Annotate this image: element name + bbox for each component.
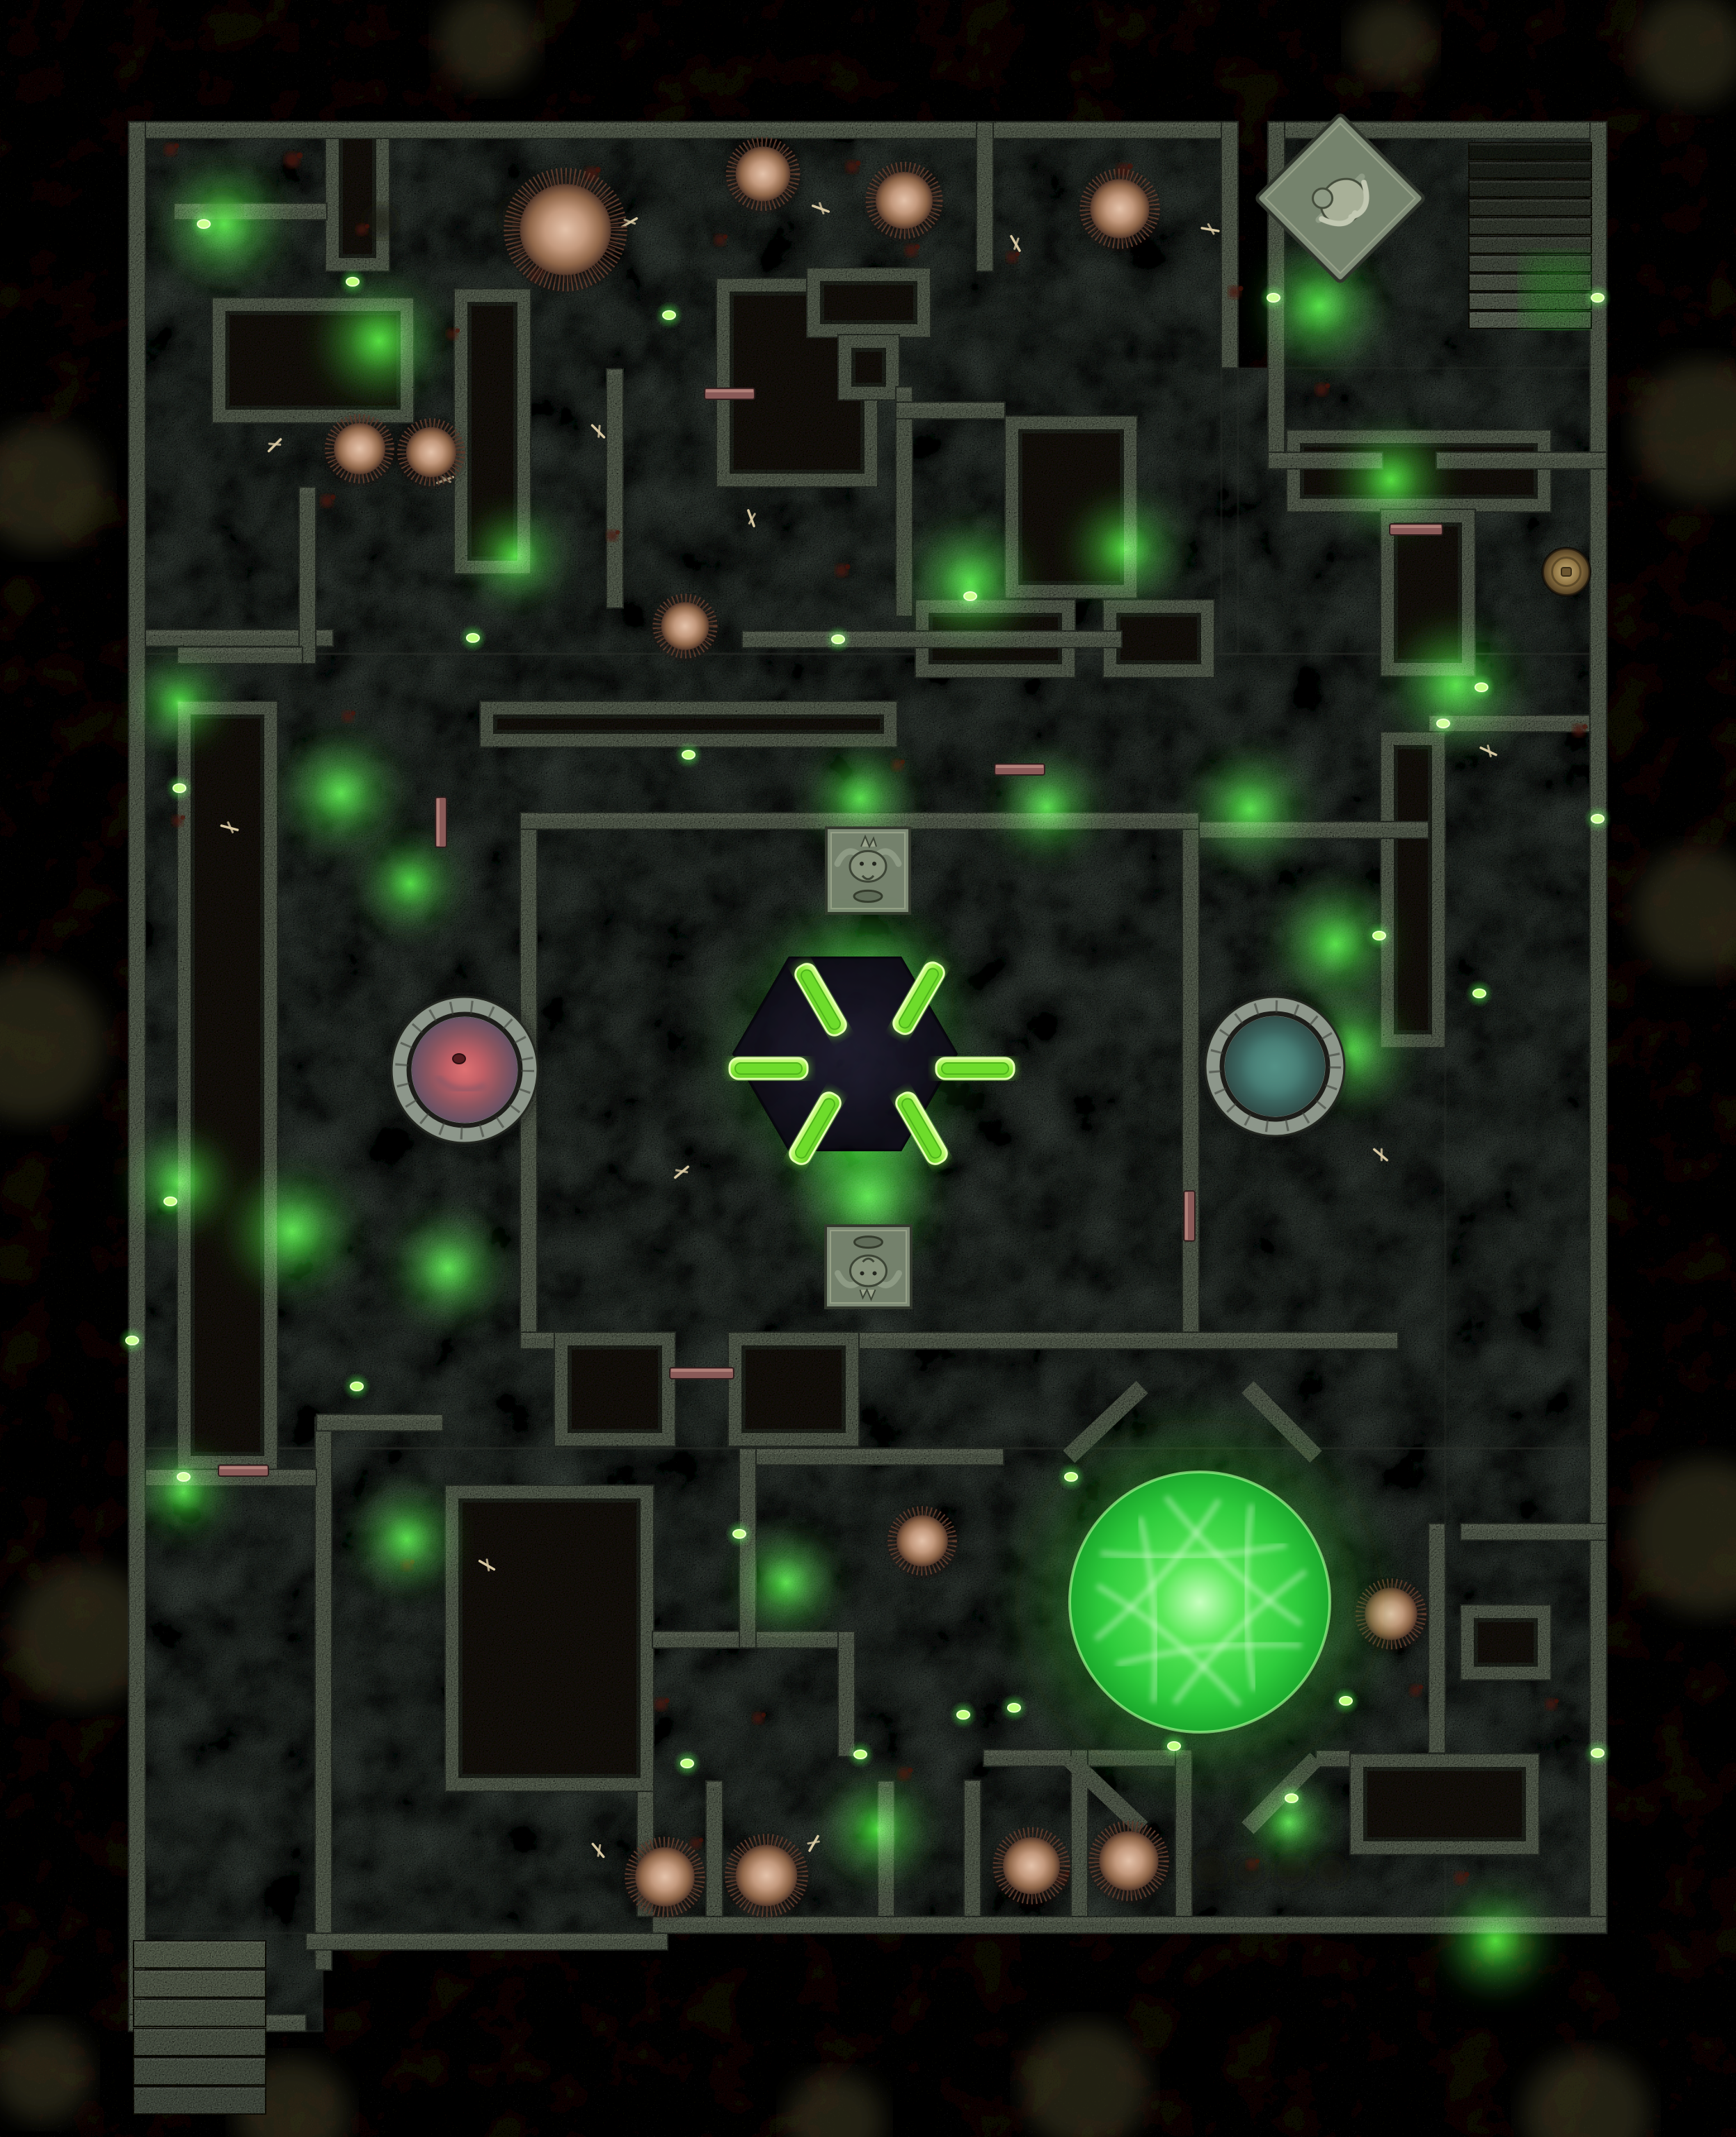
wall-highlight — [1269, 123, 1605, 127]
statue-eye — [872, 862, 876, 866]
wall-highlight — [608, 370, 622, 374]
wall-highlight — [1430, 1525, 1444, 1529]
door-marker[interactable] — [218, 1465, 268, 1476]
wall-highlight — [897, 403, 1004, 408]
wall-light[interactable] — [177, 1473, 190, 1481]
green-orb[interactable] — [998, 1400, 1401, 1804]
wall-highlight — [741, 1450, 755, 1454]
wall-light[interactable] — [663, 311, 675, 319]
wall-highlight — [130, 123, 1237, 127]
wall-light[interactable] — [1340, 1697, 1352, 1705]
stair-step — [134, 1970, 266, 1997]
pit-hole — [822, 283, 915, 322]
blood-splatter-dot — [1325, 383, 1330, 388]
puffball-mushroom[interactable] — [1092, 1827, 1166, 1900]
wall — [129, 122, 145, 2031]
door-highlight — [220, 1466, 267, 1469]
blood-splatter-dot — [699, 1838, 703, 1842]
pit-hole — [1476, 1620, 1536, 1665]
door-marker[interactable] — [705, 388, 755, 399]
mushroom-cap — [520, 184, 611, 275]
door-marker[interactable] — [670, 1368, 734, 1379]
stair-step — [134, 2028, 266, 2056]
wall-highlight — [965, 1782, 979, 1786]
wall-light[interactable] — [682, 751, 695, 759]
wall-light[interactable] — [198, 220, 210, 228]
stair-step-edge — [1469, 237, 1591, 239]
green-glow-core — [853, 1804, 903, 1855]
stair-step-edge — [1469, 161, 1591, 164]
stair-step-edge — [1469, 218, 1591, 221]
bronze-disc[interactable] — [1541, 547, 1591, 597]
green-glow-core — [492, 533, 539, 580]
stair-step — [134, 2058, 266, 2085]
wall-light[interactable] — [173, 784, 186, 792]
blood-splatter-dot — [855, 161, 860, 166]
green-glow-core — [1222, 781, 1278, 838]
wall — [1590, 122, 1607, 1933]
statue-head — [850, 851, 886, 881]
stair-step — [134, 1999, 266, 2026]
blood-splatter-dot — [1127, 163, 1133, 169]
portal-bar — [936, 1058, 1014, 1079]
statue-eye — [860, 1271, 865, 1275]
wall-light[interactable] — [1475, 683, 1488, 691]
portal-bar — [730, 1058, 807, 1079]
wall-light[interactable] — [1373, 931, 1385, 940]
blood-splatter-dot — [845, 564, 850, 569]
puffball-mushroom[interactable] — [729, 143, 797, 211]
door-highlight — [996, 765, 1043, 768]
wall-highlight — [707, 1782, 721, 1786]
demon-statue-top[interactable] — [826, 828, 910, 913]
green-glow-core — [1289, 276, 1349, 336]
wall-light[interactable] — [964, 592, 976, 600]
blood-splatter-dot — [1554, 1699, 1559, 1703]
scorch-crater — [364, 205, 397, 238]
scorch-crater — [1192, 1852, 1228, 1888]
wall-highlight — [1269, 123, 1283, 127]
blood-splatter-dot — [616, 530, 620, 534]
statue-bowl — [854, 890, 882, 902]
wall-highlight — [741, 1450, 1002, 1454]
pool-orifice — [453, 1054, 465, 1064]
stair-step — [134, 2087, 266, 2114]
blood-splatter-dot — [1419, 1685, 1423, 1689]
blood-splatter-dot — [915, 244, 919, 249]
pool-liquid — [412, 1017, 517, 1123]
mushroom-cap — [1099, 1831, 1158, 1890]
statue-eye — [873, 1271, 877, 1275]
door-marker[interactable] — [995, 764, 1045, 775]
green-glow-core — [158, 681, 202, 725]
green-glow-core — [1099, 523, 1152, 577]
wall-highlight — [1591, 123, 1605, 127]
demon-statue-bottom[interactable] — [826, 1226, 911, 1308]
stair-step-edge — [1469, 180, 1591, 183]
blood-splatter-dot — [908, 1768, 913, 1772]
stair-step-edge — [134, 2058, 266, 2060]
green-glow-core — [313, 765, 369, 822]
wall-highlight — [179, 648, 301, 653]
stair-step-edge — [1469, 199, 1591, 202]
wall-highlight — [860, 1334, 1397, 1338]
puffball-mushroom[interactable] — [655, 599, 715, 659]
red-pool[interactable] — [387, 993, 542, 1147]
wall-highlight — [839, 1633, 853, 1637]
statue-eye — [860, 862, 864, 866]
blood-splatter-dot — [1582, 724, 1587, 729]
wall-light[interactable] — [126, 1336, 138, 1345]
blood-splatter-dot — [456, 328, 460, 333]
puffball-mushroom[interactable] — [400, 424, 463, 486]
moss-patch — [1349, 0, 1433, 83]
pit-hole — [1365, 1769, 1524, 1839]
wall-highlight — [897, 388, 911, 392]
blood-splatter-dot — [1464, 1872, 1469, 1877]
wall-highlight — [307, 1935, 666, 1939]
pit-hole — [1118, 615, 1199, 662]
wall-light[interactable] — [1285, 1794, 1298, 1802]
wall-highlight — [1462, 1525, 1605, 1529]
mushroom-cap — [1090, 179, 1149, 238]
stairs-top-right[interactable] — [1469, 143, 1591, 330]
wall-light[interactable] — [832, 635, 844, 643]
blood-splatter-dot — [723, 234, 728, 239]
wall-highlight — [130, 123, 144, 127]
wall-light[interactable] — [733, 1530, 746, 1538]
green-glow-core — [421, 1242, 475, 1295]
green-glow-core — [1365, 454, 1418, 507]
blood-splatter-dot — [762, 1713, 766, 1717]
stair-glow — [1524, 255, 1591, 330]
wall-light[interactable] — [1065, 1473, 1077, 1481]
wall-light[interactable] — [1591, 1749, 1604, 1757]
wall — [706, 1781, 723, 1916]
green-glow-core — [261, 1200, 323, 1263]
stair-step-edge — [134, 1941, 266, 1944]
teal-pool[interactable] — [1201, 993, 1349, 1140]
mushroom-cap — [897, 1515, 948, 1567]
door-highlight — [437, 799, 440, 846]
disc-clasp — [1561, 568, 1571, 576]
wall — [1182, 813, 1199, 1349]
wall — [838, 1631, 855, 1756]
blood-splatter-dot — [595, 167, 601, 173]
door-marker[interactable] — [1184, 1191, 1195, 1241]
wall-highlight — [1438, 454, 1605, 458]
statue-bowl — [855, 1237, 883, 1248]
wall-light[interactable] — [164, 1197, 177, 1206]
stair-step — [134, 1941, 266, 1968]
mushroom-cap — [635, 1847, 694, 1906]
door-marker[interactable] — [1390, 524, 1442, 535]
green-glow-core — [1305, 914, 1365, 974]
wall-light[interactable] — [957, 1711, 970, 1719]
pit-hole — [495, 717, 882, 732]
wall-light[interactable] — [346, 278, 359, 286]
wall-highlight — [300, 488, 314, 493]
blood-splatter-dot — [1015, 252, 1020, 256]
pit-hole — [460, 1500, 638, 1776]
wall-light[interactable] — [467, 634, 479, 642]
stair-step-edge — [134, 2087, 266, 2090]
portal-bar-core — [735, 1063, 802, 1074]
wall-light[interactable] — [1168, 1742, 1180, 1750]
green-glow-core — [1469, 1914, 1522, 1968]
wall-light[interactable] — [1473, 989, 1486, 998]
wall-light[interactable] — [1591, 815, 1604, 823]
wall-highlight — [978, 123, 992, 127]
pit-hole — [853, 350, 884, 385]
puffball-mushroom[interactable] — [1083, 175, 1157, 248]
stair-step-edge — [134, 1970, 266, 1973]
puffball-mushroom[interactable] — [328, 419, 392, 483]
puffball-mushroom[interactable] — [869, 168, 940, 239]
pit-hole — [570, 1347, 660, 1431]
green-glow-core — [349, 311, 409, 371]
wall-highlight — [638, 1793, 652, 1797]
stair-step-edge — [1469, 143, 1591, 145]
stair-step-edge — [134, 2028, 266, 2031]
green-glow-core — [387, 860, 434, 907]
wall — [964, 1780, 981, 1916]
blood-splatter-dot — [351, 711, 355, 715]
pool-swirl — [1247, 1039, 1302, 1094]
wall — [315, 1417, 332, 1970]
wall-light[interactable] — [854, 1750, 867, 1759]
wall — [976, 122, 993, 271]
blood-splatter-dot — [365, 224, 369, 228]
statue-head — [851, 1256, 887, 1286]
wall-highlight — [1223, 123, 1237, 127]
pit-hole — [1396, 747, 1430, 1032]
door-highlight — [1185, 1192, 1188, 1240]
wall-light[interactable] — [681, 1759, 693, 1768]
door-highlight — [671, 1369, 732, 1372]
green-glow-core — [382, 1514, 432, 1564]
scorch-crater — [1315, 1855, 1347, 1887]
door-marker[interactable] — [435, 797, 447, 847]
door-highlight — [1391, 525, 1441, 528]
pit-hole — [341, 137, 374, 256]
wall-highlight — [318, 1416, 442, 1420]
green-glow-core — [1022, 782, 1072, 832]
puffball-mushroom[interactable] — [890, 1512, 954, 1576]
mushroom-cap — [334, 423, 385, 474]
blood-splatter-dot — [297, 152, 303, 159]
green-glow-core — [835, 774, 885, 824]
puffball-mushroom[interactable] — [728, 1840, 805, 1916]
wall — [1221, 122, 1238, 368]
blood-splatter-dot — [1238, 286, 1243, 291]
wall — [606, 369, 623, 608]
map-canvas — [0, 0, 1736, 2137]
puffball-mushroom[interactable] — [508, 175, 622, 289]
door-highlight — [706, 390, 753, 392]
blood-splatter-dot — [181, 815, 185, 819]
puffball-mushroom[interactable] — [628, 1843, 702, 1916]
pit-hole — [744, 1347, 844, 1431]
portal-bar-core — [942, 1063, 1008, 1074]
blood-splatter-dot — [330, 495, 335, 499]
blood-splatter-dot — [664, 1698, 669, 1703]
dungeon-battle-map — [0, 0, 1736, 2137]
wall-light[interactable] — [1591, 294, 1604, 302]
wall-light[interactable] — [1437, 719, 1449, 728]
blood-splatter-dot — [1255, 1859, 1260, 1863]
wall-light[interactable] — [351, 1382, 363, 1391]
wall-light[interactable] — [1267, 294, 1280, 302]
puffball-mushroom[interactable] — [996, 1833, 1067, 1904]
green-glow-core — [761, 1558, 811, 1608]
wall — [1429, 1523, 1445, 1753]
blood-splatter-dot — [174, 143, 179, 148]
wall-light[interactable] — [1008, 1704, 1020, 1712]
stair-step-edge — [134, 1999, 266, 2002]
wall-highlight — [522, 1334, 553, 1338]
wall — [299, 487, 316, 664]
